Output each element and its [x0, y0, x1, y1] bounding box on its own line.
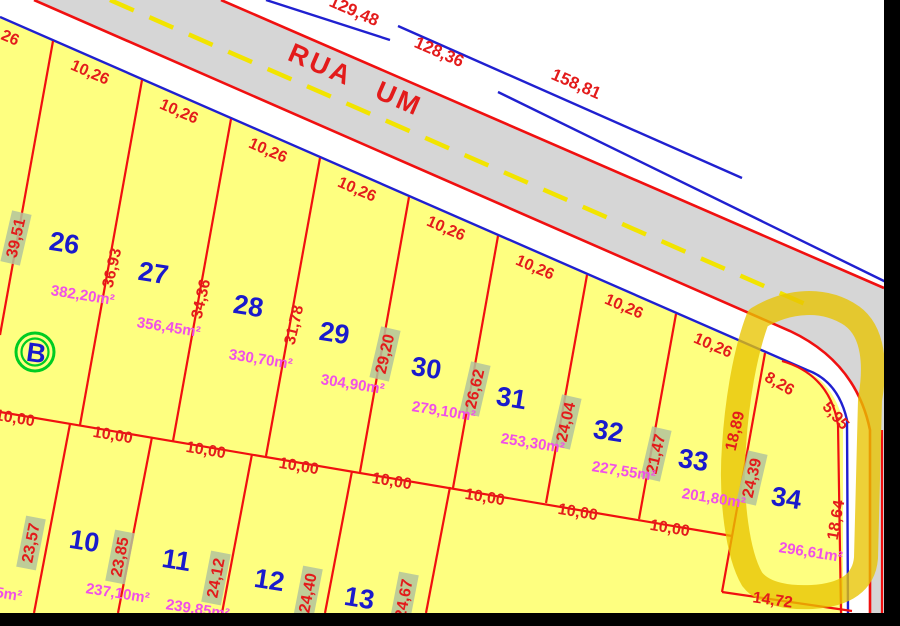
lot-34-number: 34: [769, 481, 803, 515]
block-b-label: B: [25, 337, 48, 369]
lot-29-number: 29: [317, 316, 351, 350]
lot-13-number: 13: [342, 581, 376, 615]
bottom-crop-border: [0, 613, 900, 626]
lot-31-number: 31: [494, 381, 528, 415]
plat-map-canvas[interactable]: RUA UM 129,48 128,36 158,81 10,26 10,26 …: [0, 0, 900, 626]
lot-32-number: 32: [591, 414, 625, 448]
lot-28-number: 28: [231, 289, 265, 323]
lot-12-number: 12: [252, 563, 286, 597]
lot-10-number: 10: [67, 524, 101, 558]
right-crop-border: [884, 0, 900, 626]
lot-11-number: 11: [160, 543, 193, 577]
lot-27-number: 27: [136, 256, 170, 290]
lot-9-area-fragment: 5m²: [0, 584, 23, 605]
lot-26-number: 26: [47, 226, 81, 260]
lot-33-number: 33: [676, 443, 710, 477]
lot-30-number: 30: [409, 351, 443, 385]
block-b-marker: B: [16, 333, 54, 371]
plat-map-stage: RUA UM 129,48 128,36 158,81 10,26 10,26 …: [0, 0, 900, 626]
